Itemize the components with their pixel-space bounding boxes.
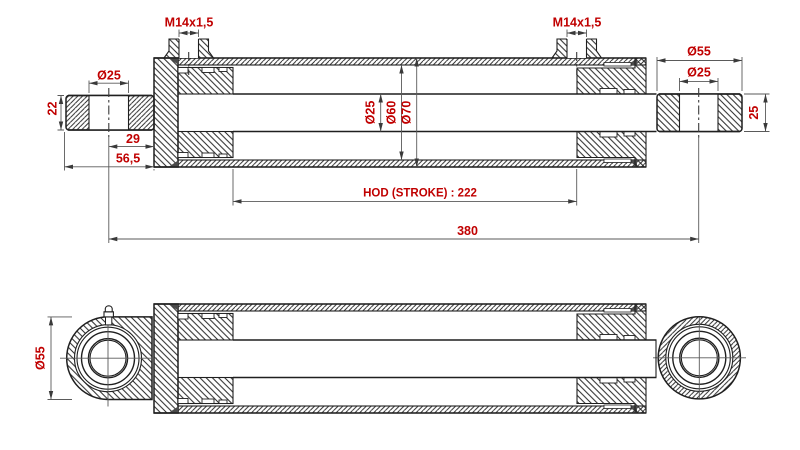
svg-text:Ø55: Ø55 — [687, 45, 711, 59]
svg-text:Ø60: Ø60 — [385, 101, 399, 125]
svg-text:380: 380 — [457, 224, 478, 238]
svg-text:M14x1,5: M14x1,5 — [165, 16, 214, 30]
svg-text:22: 22 — [46, 102, 60, 116]
svg-text:Ø25: Ø25 — [687, 66, 711, 80]
svg-text:M14x1,5: M14x1,5 — [553, 16, 602, 30]
svg-text:29: 29 — [126, 132, 140, 146]
svg-text:25: 25 — [747, 106, 761, 120]
svg-text:HOD (STROKE) : 222: HOD (STROKE) : 222 — [363, 188, 477, 200]
svg-text:Ø25: Ø25 — [364, 101, 378, 125]
svg-text:Ø25: Ø25 — [97, 69, 121, 83]
svg-text:Ø55: Ø55 — [34, 346, 48, 370]
svg-text:Ø70: Ø70 — [400, 101, 414, 125]
svg-text:56,5: 56,5 — [116, 152, 140, 166]
